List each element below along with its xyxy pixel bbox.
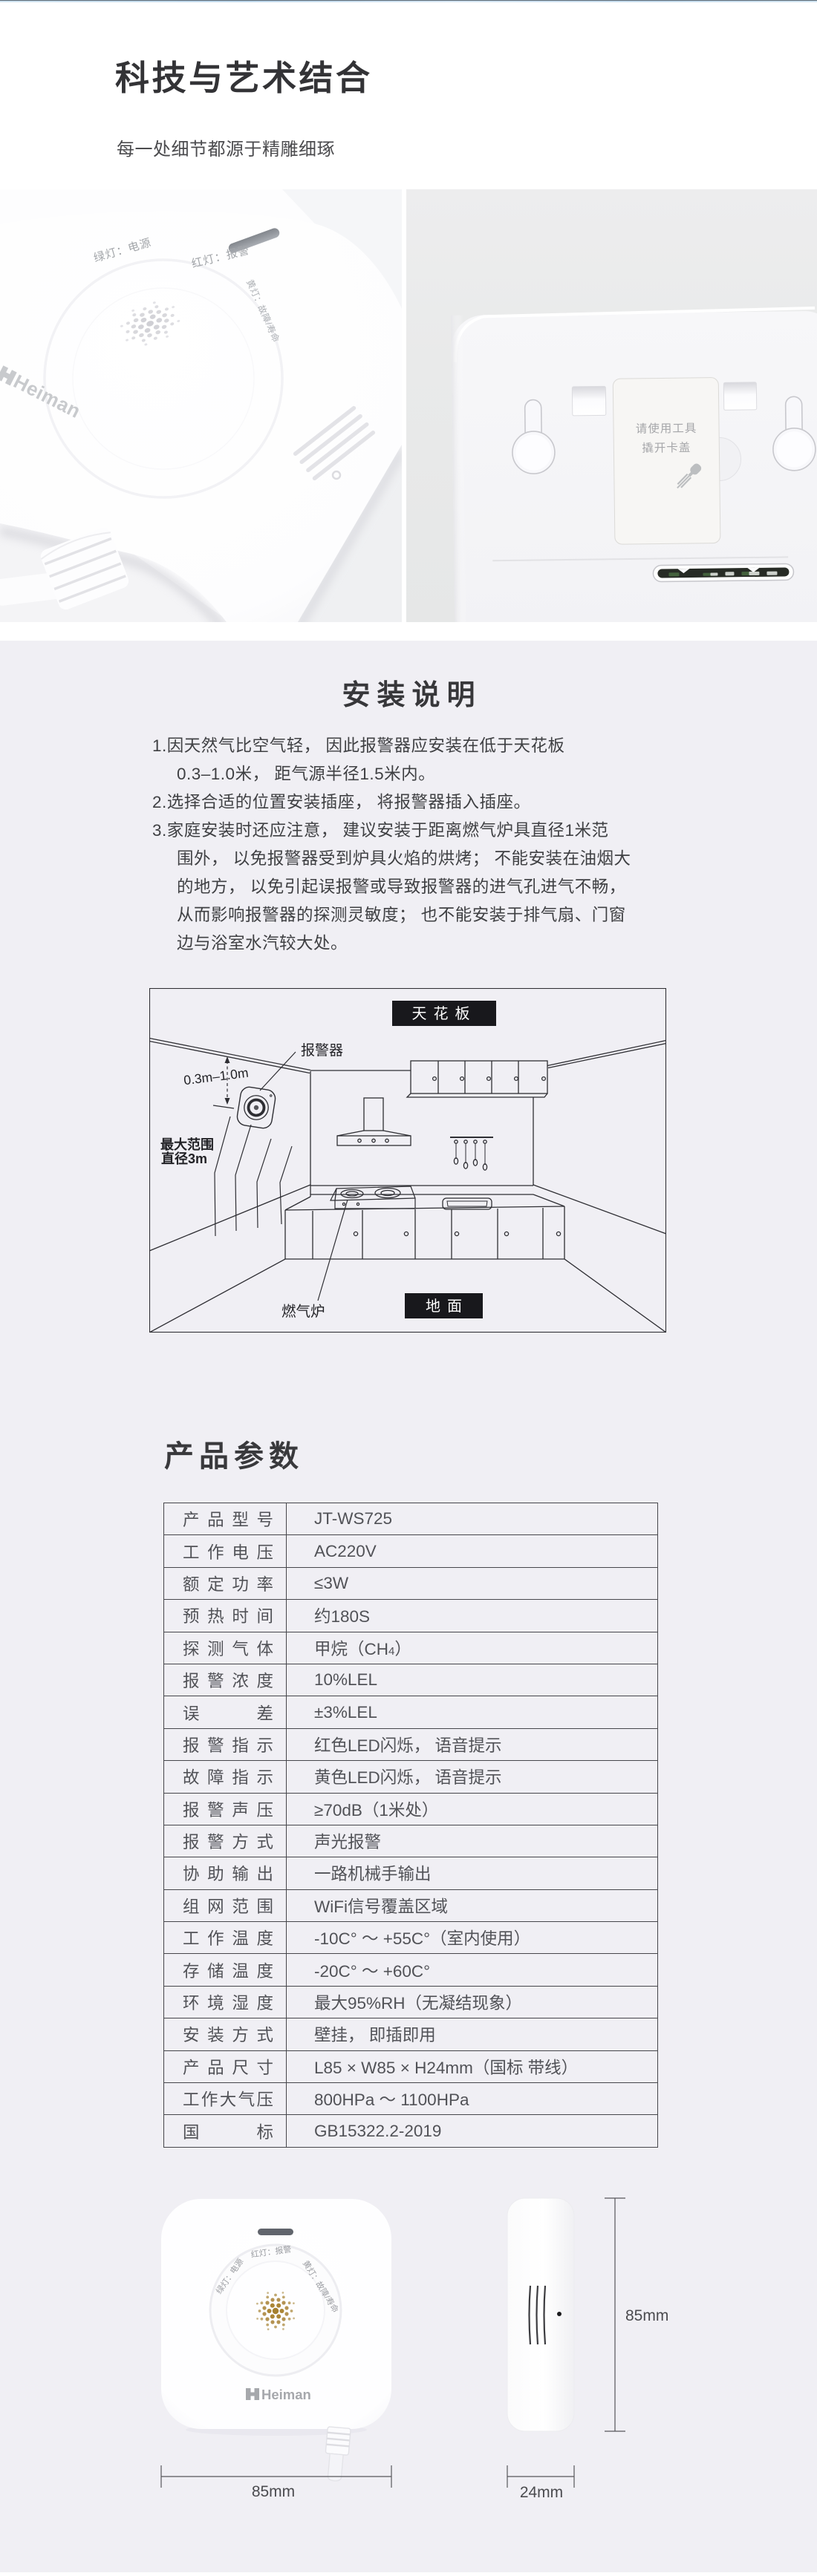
svg-text:地面: 地面 [426, 1298, 469, 1315]
svg-text:85mm: 85mm [625, 2307, 668, 2324]
svg-text:Heiman: Heiman [261, 2387, 311, 2402]
svg-text:天花板: 天花板 [412, 1005, 477, 1022]
svg-text:24mm: 24mm [520, 2484, 563, 2501]
svg-text:85mm: 85mm [252, 2483, 295, 2500]
svg-text:直径3m: 直径3m [161, 1151, 207, 1166]
svg-text:报警器: 报警器 [301, 1042, 343, 1059]
svg-text:最大范围: 最大范围 [160, 1137, 214, 1152]
svg-text:请使用工具: 请使用工具 [636, 422, 697, 436]
svg-text:撬开卡盖: 撬开卡盖 [642, 441, 691, 455]
svg-text:燃气炉: 燃气炉 [281, 1304, 325, 1320]
svg-text:0.3m–1.0m: 0.3m–1.0m [183, 1065, 249, 1088]
